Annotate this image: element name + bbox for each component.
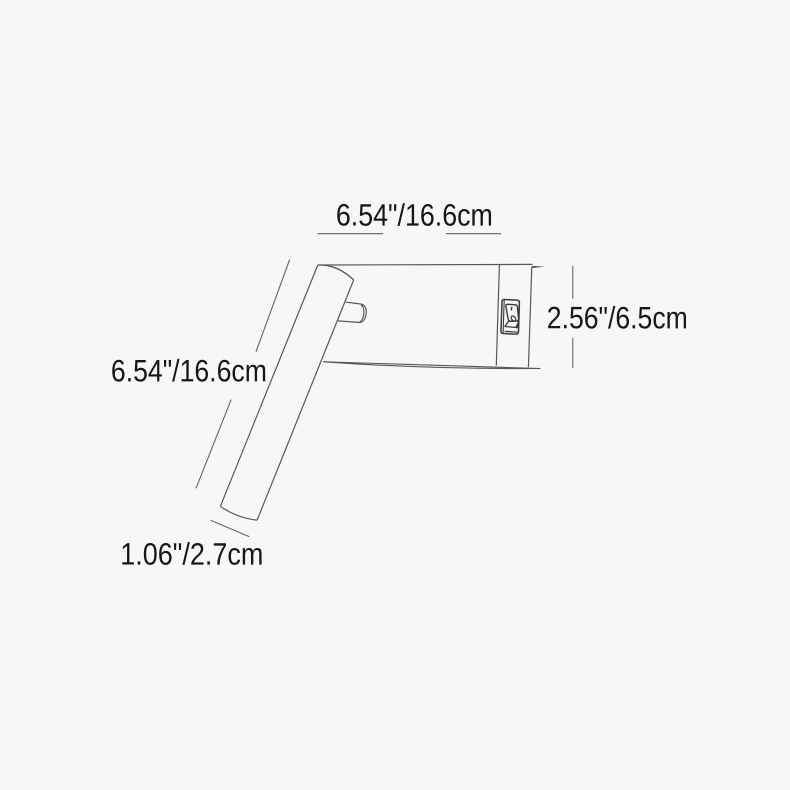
svg-text:2.56"/6.5cm: 2.56"/6.5cm (547, 300, 688, 335)
svg-text:1.06"/2.7cm: 1.06"/2.7cm (120, 537, 263, 572)
svg-text:6.54"/16.6cm: 6.54"/16.6cm (111, 353, 267, 388)
svg-text:6.54"/16.6cm: 6.54"/16.6cm (336, 198, 493, 233)
